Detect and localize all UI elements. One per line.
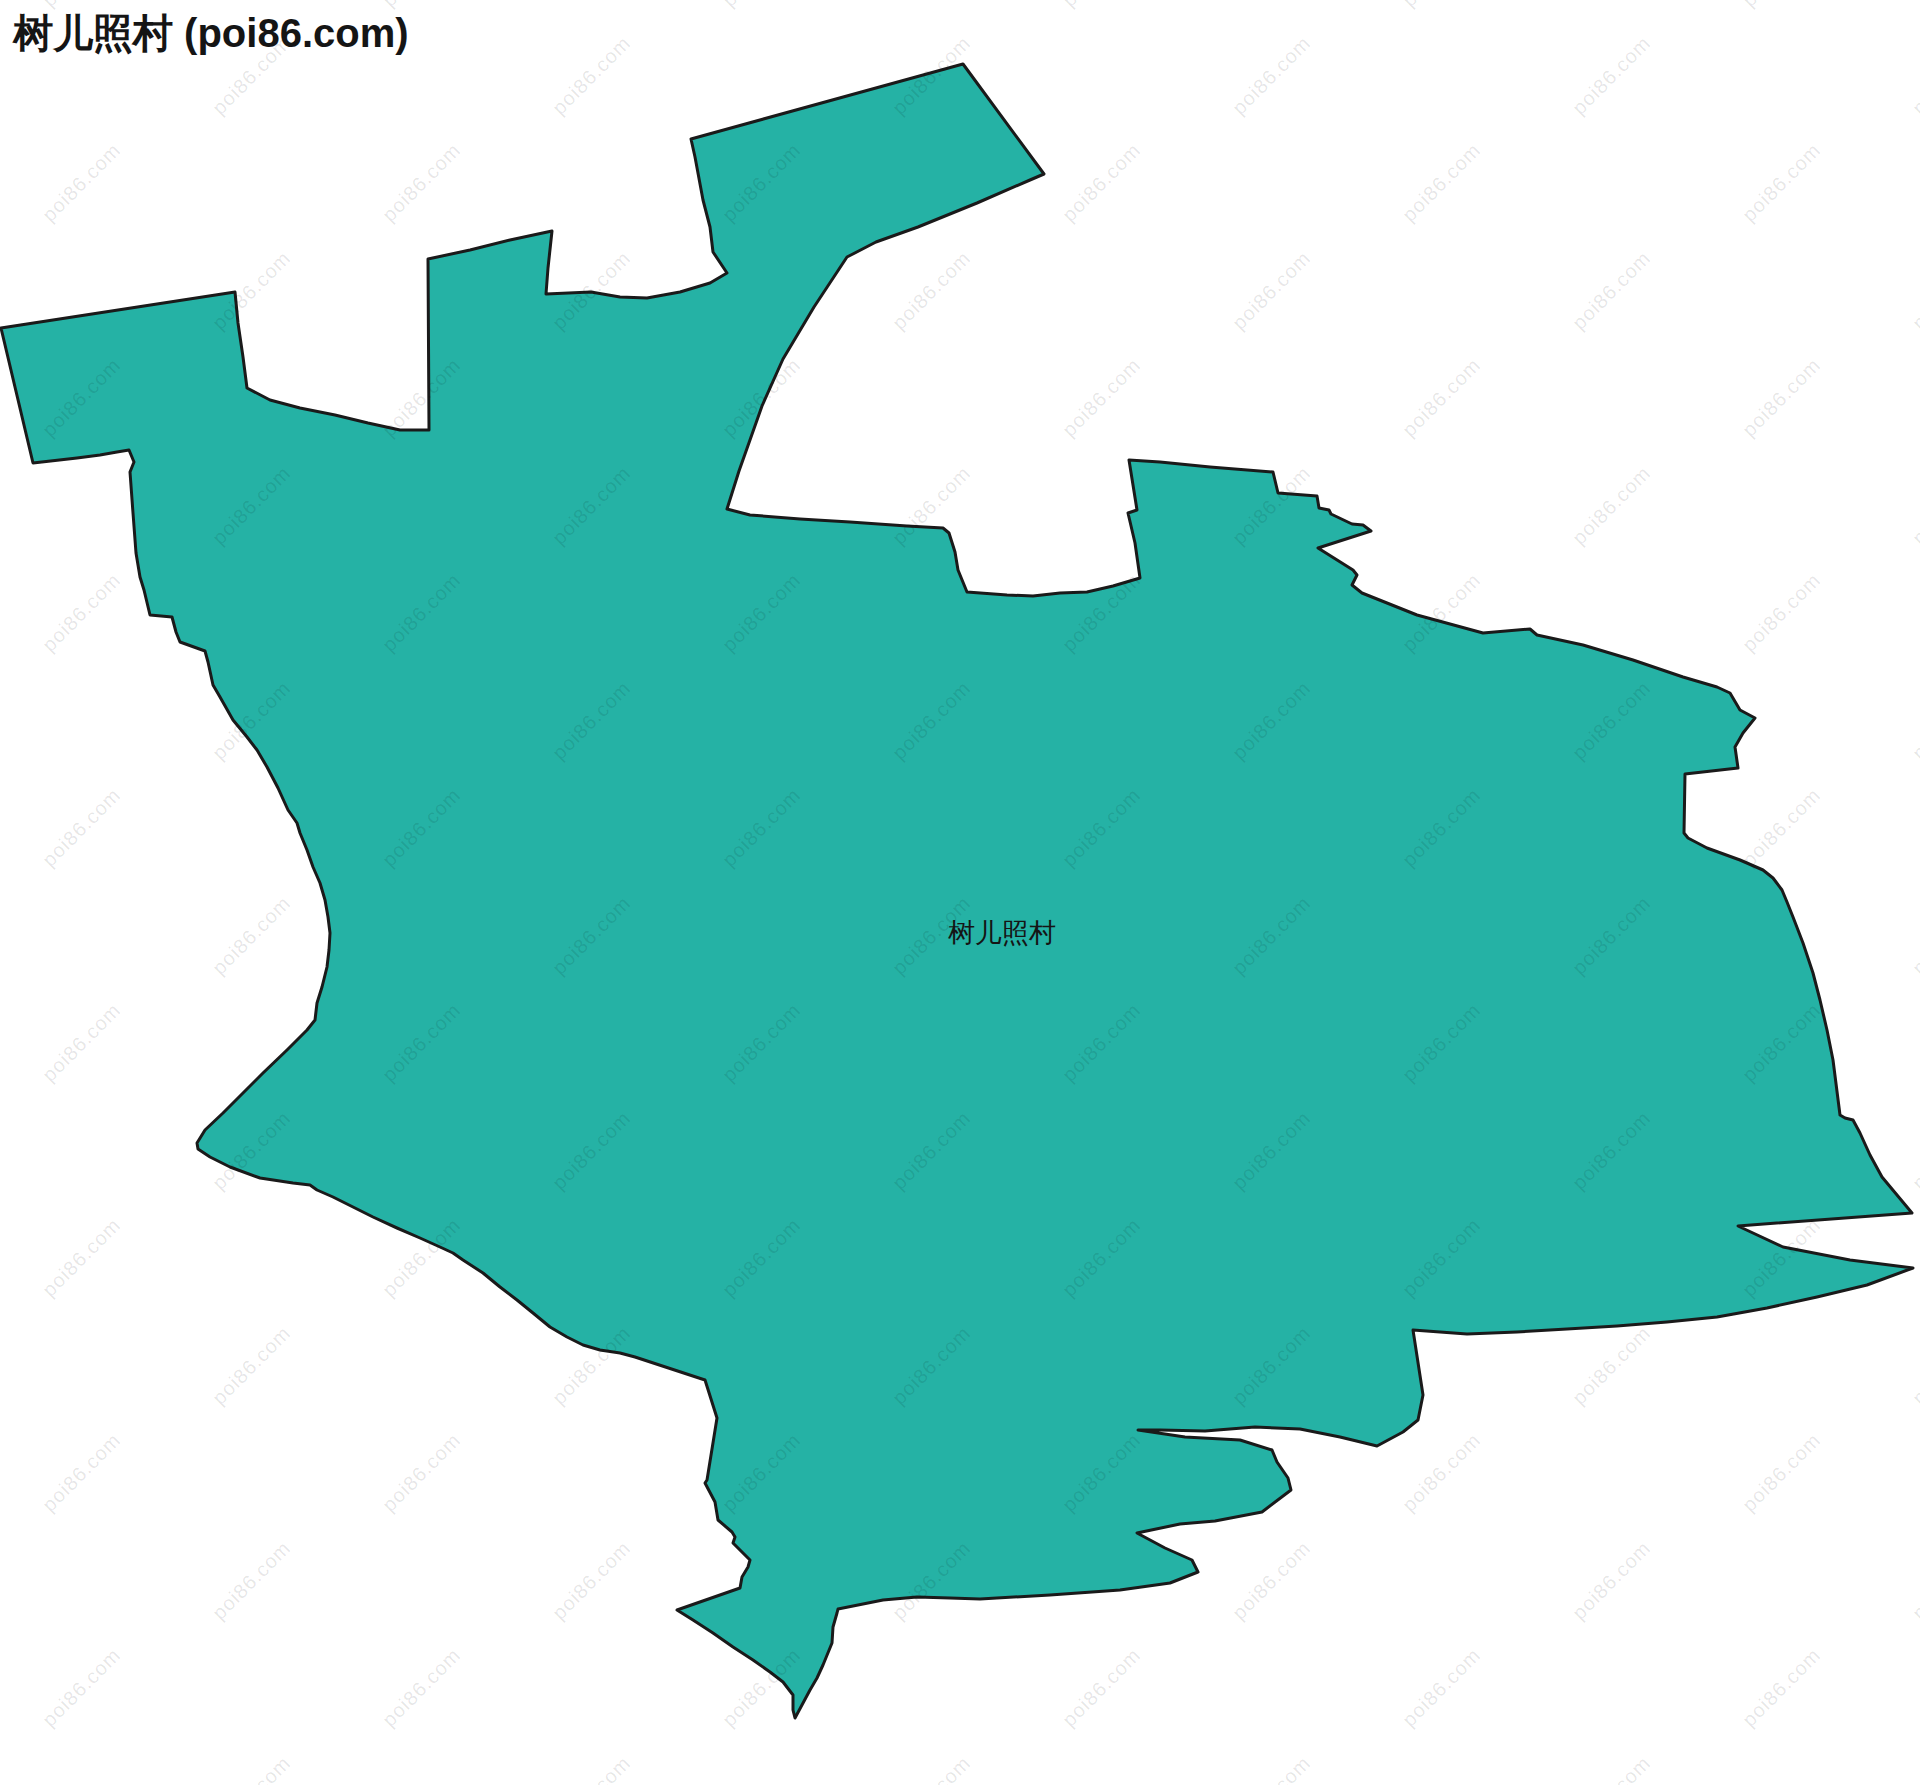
village-boundary-polygon <box>1 64 1913 1718</box>
page-title: 树儿照村 (poi86.com) <box>13 6 409 61</box>
region-label: 树儿照村 <box>948 918 1056 948</box>
map-page: 树儿照村 (poi86.com) 树儿照村 poi86.compoi86.com… <box>0 0 1920 1785</box>
map-canvas: 树儿照村 <box>0 0 1920 1785</box>
